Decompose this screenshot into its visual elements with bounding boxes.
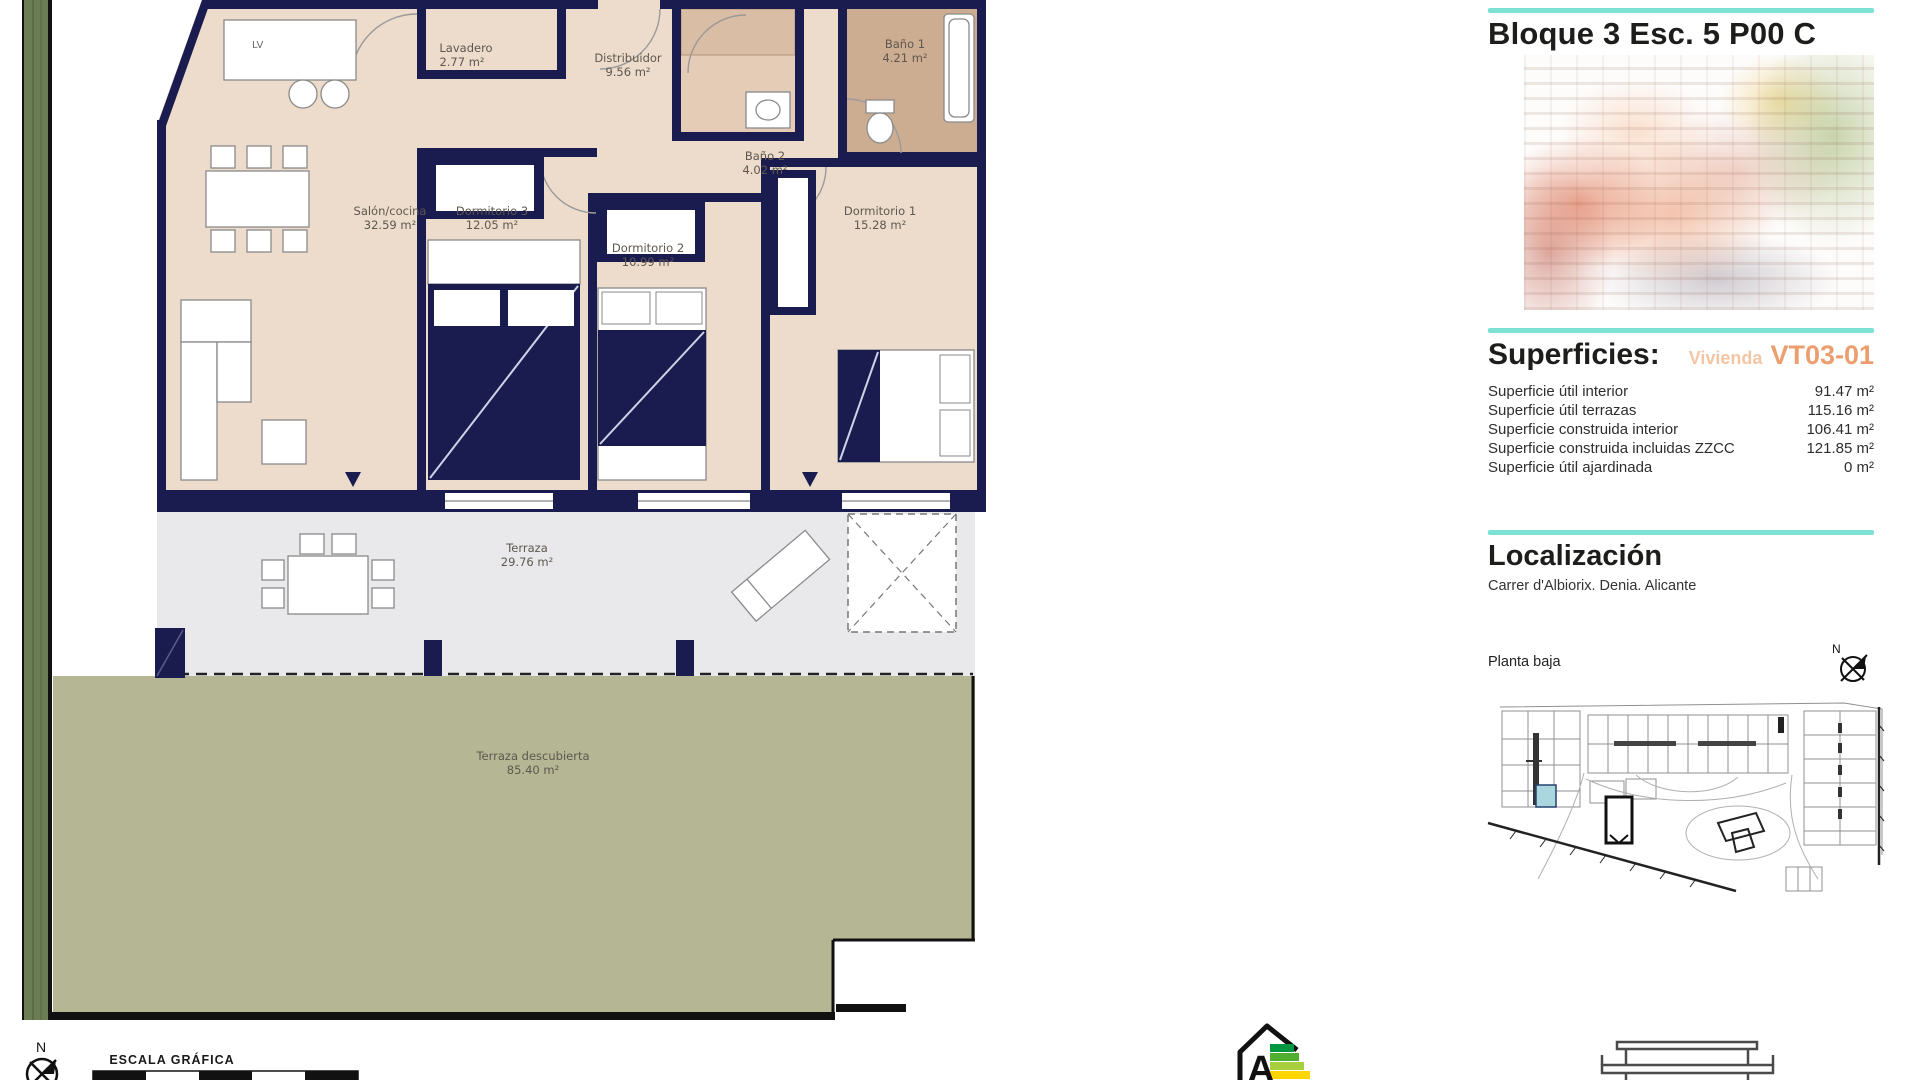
svg-text:85.40 m²: 85.40 m² (507, 763, 559, 777)
superficies-table: Superficie útil interior 91.47 m² Superf… (1488, 382, 1874, 477)
site-key-plan (1486, 695, 1886, 895)
svg-text:4.21 m²: 4.21 m² (882, 51, 927, 65)
superficies-heading: Superficies: (1488, 338, 1660, 372)
svg-text:12.05 m²: 12.05 m² (466, 218, 518, 232)
label-dorm1: Dormitorio 1 (844, 204, 916, 218)
siteplan-compass-icon: N (1828, 640, 1872, 688)
superficies-row: Superficie útil interior 91.47 m² (1488, 382, 1874, 401)
building-render-image (1524, 55, 1874, 310)
label-bano2: Baño 2 (745, 149, 785, 163)
superficies-row: Superficie útil ajardinada 0 m² (1488, 458, 1874, 477)
hedge-strip (23, 0, 52, 1020)
scale-bar-label: ESCALA GRÁFICA (109, 1052, 234, 1067)
svg-text:N: N (36, 1039, 46, 1055)
label-terraza: Terraza (505, 541, 548, 555)
svg-text:10.99 m²: 10.99 m² (622, 255, 674, 269)
info-panel: Bloque 3 Esc. 5 P00 C Superficies: Vivie… (1488, 0, 1874, 1080)
svg-text:29.76 m²: 29.76 m² (501, 555, 553, 569)
label-bano1: Baño 1 (885, 37, 925, 51)
energy-letter: A (1247, 1049, 1274, 1080)
energy-rating-icon: A (1240, 1026, 1316, 1080)
address-text: Carrer d'Albiorix. Denia. Alicante (1488, 578, 1874, 594)
svg-text:32.59 m²: 32.59 m² (364, 218, 416, 232)
divider-localizacion (1488, 530, 1874, 535)
highlighted-unit (1536, 785, 1556, 807)
floor-label: Planta baja (1488, 654, 1874, 670)
kitchen-lv-label: LV (252, 40, 263, 51)
label-salon: Salón/cocina (354, 204, 427, 218)
localizacion-heading: Localización (1488, 540, 1874, 573)
page-title: Bloque 3 Esc. 5 P00 C (1488, 16, 1874, 52)
svg-text:15.28 m²: 15.28 m² (854, 218, 906, 232)
floorplan-sheet: LV (0, 0, 1920, 1080)
bath2-fixtures (746, 92, 790, 128)
label-lavadero: Lavadero (439, 41, 492, 55)
svg-text:2.77 m²: 2.77 m² (439, 55, 484, 69)
divider-superficies (1488, 328, 1874, 333)
label-terraza-descubierta: Terraza descubierta (475, 749, 589, 763)
label-distribuidor: Distribuidor (594, 51, 662, 65)
plan-compass-icon: N (27, 1039, 57, 1080)
svg-text:4.02 m²: 4.02 m² (742, 163, 787, 177)
label-dorm3: Dormitorio 3 (456, 204, 528, 218)
garden-area (23, 676, 975, 1020)
superficies-row: Superficie construida incluidas ZZCC 121… (1488, 439, 1874, 458)
vivienda-code-group: ViviendaVT03-01 (1689, 340, 1874, 371)
dining-set (206, 146, 309, 252)
superficies-row: Superficie construida interior 106.41 m² (1488, 420, 1874, 439)
label-dorm2: Dormitorio 2 (612, 241, 684, 255)
vivienda-code: VT03-01 (1770, 340, 1874, 370)
scale-bar: ESCALA GRÁFICA (93, 1052, 358, 1080)
vivienda-label: Vivienda (1689, 348, 1763, 368)
svg-text:N: N (1832, 642, 1841, 656)
divider-top (1488, 8, 1874, 13)
superficies-row: Superficie útil terrazas 115.16 m² (1488, 401, 1874, 420)
svg-text:9.56 m²: 9.56 m² (605, 65, 650, 79)
